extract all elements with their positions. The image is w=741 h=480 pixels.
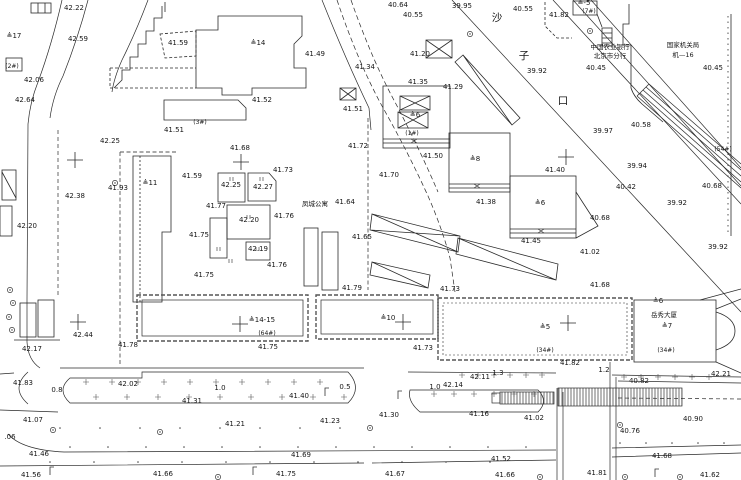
spot-elevation-label: (3#) <box>193 119 207 126</box>
spot-elevation-label: 41.79 <box>342 284 362 292</box>
lamp-symbol-icon <box>50 467 54 475</box>
spot-elevation-label: 40.55 <box>513 5 533 13</box>
grid-crosses <box>67 149 576 332</box>
survey-dot <box>697 442 699 444</box>
building-number-label: ≜-5 <box>578 0 591 7</box>
survey-dot <box>525 446 527 448</box>
tree-symbol-icon <box>157 429 162 434</box>
spot-elevation-label: 41.34 <box>355 63 376 71</box>
spot-elevation-label: 41.82 <box>549 11 569 19</box>
spot-elevation-label: 40.58 <box>631 121 651 129</box>
spot-elevation-label: 41.21 <box>225 420 245 428</box>
building-number-label: ≜6 <box>653 297 664 305</box>
spot-elevation-label: 40.76 <box>620 427 641 435</box>
spot-elevation-label: 39.92 <box>708 243 728 251</box>
elevation-labels: 42.2242.5942.0642.6441.5941.4941.5241.51… <box>4 0 731 479</box>
spot-elevation-label: 42.27 <box>253 183 273 191</box>
survey-dot <box>59 427 61 429</box>
dimension-label: 0.5 <box>339 383 350 391</box>
survey-dot <box>219 427 221 429</box>
plus-tick-icon <box>83 379 89 385</box>
spot-elevation-label: 41.78 <box>118 341 138 349</box>
lamp-symbol-icon <box>398 391 402 399</box>
tree-symbol-icon <box>367 425 372 430</box>
spot-elevation-label: 41.65 <box>352 233 372 241</box>
spot-elevation-label: 42.25 <box>100 137 120 145</box>
spot-elevation-label: 41.02 <box>524 414 544 422</box>
spot-elevation-label: (1#) <box>405 130 419 137</box>
tree-symbol-icon <box>537 474 542 479</box>
spot-elevation-label: 42.11 <box>470 373 490 381</box>
spot-elevation-label: 41.56 <box>21 471 42 479</box>
survey-dot <box>723 442 725 444</box>
plus-tick-icon <box>265 379 271 385</box>
survey-dot <box>93 461 95 463</box>
spot-elevation-label: 42.14 <box>443 381 464 389</box>
spot-elevation-label: 41.66 <box>495 471 516 479</box>
dimension-label: 0.8 <box>51 386 62 394</box>
dimension-label: 1.2 <box>598 366 609 374</box>
place-name-label: 国家机关局 <box>667 40 700 49</box>
place-name-label: 岳秀大厦 <box>651 310 678 319</box>
plus-tick-icon <box>124 394 130 400</box>
spot-elevation-label: 41.31 <box>182 397 202 405</box>
spot-elevation-label: (34#) <box>657 347 674 354</box>
spot-elevation-label: 41.67 <box>385 470 405 478</box>
spot-elevation-label: 41.73 <box>273 166 293 174</box>
spot-elevation-label: 40.45 <box>586 64 606 72</box>
spot-elevation-label: 41.69 <box>291 451 311 459</box>
dimension-label: 1.3 <box>492 369 503 377</box>
spot-elevation-label: 39.92 <box>527 67 547 75</box>
spot-elevation-label: 42.06 <box>24 76 45 84</box>
dimension-label: 1.0 <box>214 384 225 392</box>
survey-dot <box>107 446 109 448</box>
parcel-boundaries <box>120 118 632 366</box>
spot-elevation-label: 41.45 <box>521 237 541 245</box>
survey-cross-icon <box>558 149 574 165</box>
spot-elevation-label: 42.44 <box>73 331 94 339</box>
plus-tick-icon <box>689 374 695 380</box>
place-name-label: 凤城公寓 <box>302 199 328 208</box>
spot-elevation-label: 40.64 <box>388 1 409 9</box>
spot-elevation-label: 41.35 <box>408 78 428 86</box>
spot-elevation-label: 41.50 <box>423 152 443 160</box>
building-number-label: ≜5 <box>540 323 550 331</box>
tree-symbol-icon <box>215 474 220 479</box>
plus-tick-icon <box>291 379 297 385</box>
spot-elevation-label: 39.94 <box>627 162 648 170</box>
spot-elevation-label: 41.83 <box>13 379 33 387</box>
survey-cross-icon <box>233 154 249 170</box>
spot-elevation-label: 41.76 <box>267 261 288 269</box>
spot-elevation-label: 40.55 <box>403 11 423 19</box>
spot-elevation-label: 41.66 <box>153 470 174 478</box>
spot-elevation-label: (64#) <box>258 330 275 337</box>
plus-tick-icon <box>248 394 254 400</box>
survey-cross-icon <box>67 152 83 168</box>
lamp-symbol-icon <box>325 388 329 396</box>
spot-elevation-label: 42.38 <box>65 192 85 200</box>
survey-dot <box>179 427 181 429</box>
survey-dot <box>671 442 673 444</box>
survey-cross-icon <box>395 314 411 330</box>
spot-elevation-label: 41.68 <box>590 281 610 289</box>
place-name-label: 中国农业银行 <box>591 42 631 51</box>
survey-dot <box>313 461 315 463</box>
lamp-symbol-icon <box>253 467 257 475</box>
spot-elevation-label: 41.49 <box>305 50 325 58</box>
spot-elevation-label: 42.25 <box>221 181 241 189</box>
plus-tick-icon <box>655 374 661 380</box>
survey-dot <box>225 461 227 463</box>
survey-dot <box>297 446 299 448</box>
tree-symbol-icon <box>6 314 11 319</box>
spot-elevation-label: (34#) <box>536 347 553 354</box>
survey-cross-icon <box>232 316 248 332</box>
spot-elevation-label: 40.90 <box>683 415 703 423</box>
spot-elevation-label: 41.51 <box>343 105 363 113</box>
spot-elevation-label: 39.95 <box>452 2 472 10</box>
building-number-label: ≜6 <box>535 199 546 207</box>
lamp-symbol-icon <box>655 469 659 477</box>
spot-elevation-label: 42.21 <box>711 370 731 378</box>
plus-tick-icon <box>431 391 437 397</box>
survey-dot <box>221 446 223 448</box>
plus-tick-icon <box>161 379 167 385</box>
survey-dot <box>137 461 139 463</box>
spot-elevation-label: 41.46 <box>29 450 50 458</box>
spot-elevation-label: 41.75 <box>189 231 209 239</box>
building-number-label: ≜17 <box>7 32 22 40</box>
survey-dot <box>373 446 375 448</box>
spot-elevation-label: 41.07 <box>23 416 43 424</box>
spot-elevation-label: 41.81 <box>587 469 607 477</box>
spot-elevation-label: 41.75 <box>258 343 278 351</box>
survey-dot <box>49 461 51 463</box>
street-name-character: 口 <box>558 95 569 107</box>
tree-symbol-icon <box>10 300 15 305</box>
survey-cross-icon <box>560 315 576 331</box>
spot-elevation-label: 40.68 <box>702 182 722 190</box>
plus-tick-icon <box>341 394 347 400</box>
survey-dot <box>619 442 621 444</box>
building-number-label: ≜11 <box>143 179 158 187</box>
plus-tick-icon <box>451 391 457 397</box>
survey-dot <box>445 461 447 463</box>
survey-dot <box>145 446 147 448</box>
plus-tick-icon <box>310 394 316 400</box>
spot-elevation-label: 42.20 <box>17 222 37 230</box>
spot-elevation-label: 42.59 <box>68 35 88 43</box>
survey-dot <box>99 427 101 429</box>
survey-dot <box>357 461 359 463</box>
spot-elevation-label: 41.02 <box>580 248 600 256</box>
tree-symbol-icon <box>50 427 55 432</box>
survey-dot <box>339 427 341 429</box>
spot-elevation-label: 41.40 <box>545 166 565 174</box>
spot-elevation-label: 41.59 <box>182 172 202 180</box>
survey-dot <box>269 461 271 463</box>
plus-tick-icon <box>187 379 193 385</box>
spot-elevation-label: 41.29 <box>443 83 463 91</box>
spot-elevation-label: 42.17 <box>22 345 42 353</box>
spot-elevation-label: 42.20 <box>239 216 259 224</box>
spot-elevation-label: 41.62 <box>700 471 720 479</box>
spot-elevation-label: 39.92 <box>667 199 687 207</box>
survey-cross-icon <box>70 314 86 330</box>
spot-elevation-label: 41.30 <box>379 411 399 419</box>
spot-elevation-label: (7#) <box>582 8 596 15</box>
survey-dot <box>259 427 261 429</box>
spot-elevation-label: .06 <box>4 433 16 441</box>
place-name-label: 机—16 <box>672 50 693 59</box>
spot-elevation-label: 41.72 <box>348 142 368 150</box>
spot-elevation-label: 41.93 <box>108 184 128 192</box>
spot-elevation-label: 41.59 <box>168 39 188 47</box>
survey-dot <box>139 427 141 429</box>
spot-elevation-label: 41.40 <box>289 392 309 400</box>
survey-dot <box>411 446 413 448</box>
tree-symbol-icon <box>9 327 14 332</box>
spot-elevation-label: 41.75 <box>276 470 296 478</box>
spot-elevation-label: 40.82 <box>629 377 649 385</box>
tree-symbol-icon <box>622 474 627 479</box>
plus-tick-icon <box>317 379 323 385</box>
spot-elevation-label: 40.42 <box>616 183 636 191</box>
plus-tick-icon <box>109 379 115 385</box>
spot-elevation-label: 41.70 <box>379 171 399 179</box>
plus-tick-icon <box>459 372 465 378</box>
survey-dot <box>487 446 489 448</box>
street-name-character: 子 <box>519 50 530 62</box>
survey-dot <box>69 446 71 448</box>
spot-elevation-label: 41.64 <box>335 198 356 206</box>
plus-tick-icon <box>672 374 678 380</box>
spot-elevation-label: 41.52 <box>491 455 511 463</box>
spot-elevation-label: 42.02 <box>118 380 138 388</box>
tree-symbol-icon <box>467 31 472 36</box>
spot-elevation-label: 42.19 <box>248 245 268 253</box>
building-number-label: ≜14 <box>251 39 266 47</box>
spot-elevation-label: 41.75 <box>194 271 214 279</box>
spot-elevation-label: 41.23 <box>320 417 340 425</box>
spot-elevation-label: 41.73 <box>440 285 460 293</box>
survey-dot <box>401 461 403 463</box>
spot-elevation-label: (2#) <box>5 63 19 70</box>
spot-elevation-label: 41.52 <box>252 96 272 104</box>
spot-elevation-label: 41.82 <box>560 359 580 367</box>
spot-elevation-label: 42.64 <box>15 96 36 104</box>
spot-elevation-label: 41.20 <box>410 50 430 58</box>
survey-dot <box>645 442 647 444</box>
survey-dot <box>183 446 185 448</box>
spot-elevation-label: 40.68 <box>590 214 610 222</box>
spot-elevation-label: 39.97 <box>593 127 613 135</box>
plus-tick-icon <box>279 394 285 400</box>
survey-map-canvas: 42.2242.5942.0642.6441.5941.4941.5241.51… <box>0 0 741 480</box>
survey-map: 42.2242.5942.0642.6441.5941.4941.5241.51… <box>0 0 741 480</box>
spot-elevation-label: 41.51 <box>164 126 184 134</box>
plus-tick-icon <box>93 394 99 400</box>
spot-elevation-label: 41.68 <box>652 452 672 460</box>
building-number-label: ≜8 <box>470 155 480 163</box>
dimension-label: 1.0 <box>429 383 440 391</box>
spot-elevation-label: 42.22 <box>64 4 84 12</box>
spot-elevation-label: (54#) <box>714 146 731 153</box>
spot-elevation-label: 41.73 <box>413 344 433 352</box>
survey-dot <box>335 446 337 448</box>
building-number-label: ≜14-15 <box>249 316 275 324</box>
tree-symbol-icon <box>677 474 682 479</box>
tree-symbol-icon <box>7 287 12 292</box>
plus-tick-icon <box>471 391 477 397</box>
survey-dot <box>259 446 261 448</box>
plus-tick-icon <box>155 394 161 400</box>
spot-elevation-label: 41.38 <box>476 198 496 206</box>
survey-dot <box>299 427 301 429</box>
survey-dot <box>449 446 451 448</box>
building-number-label: ≜6 <box>410 111 421 119</box>
spot-elevation-label: 41.77 <box>206 202 226 210</box>
building-number-label: ≜10 <box>381 314 396 322</box>
street-name-character: 沙 <box>492 12 503 24</box>
survey-dot <box>181 461 183 463</box>
tree-symbol-icon <box>587 28 592 33</box>
building-number-label: ≜7 <box>662 322 672 330</box>
spot-elevation-label: 41.16 <box>469 410 490 418</box>
spot-elevation-label: 41.68 <box>230 144 250 152</box>
place-name-label: 北京市分行 <box>594 51 627 60</box>
spot-elevation-label: 40.45 <box>703 64 723 72</box>
plus-tick-icon <box>217 394 223 400</box>
spot-elevation-label: 41.76 <box>274 212 295 220</box>
plus-tick-icon <box>239 379 245 385</box>
